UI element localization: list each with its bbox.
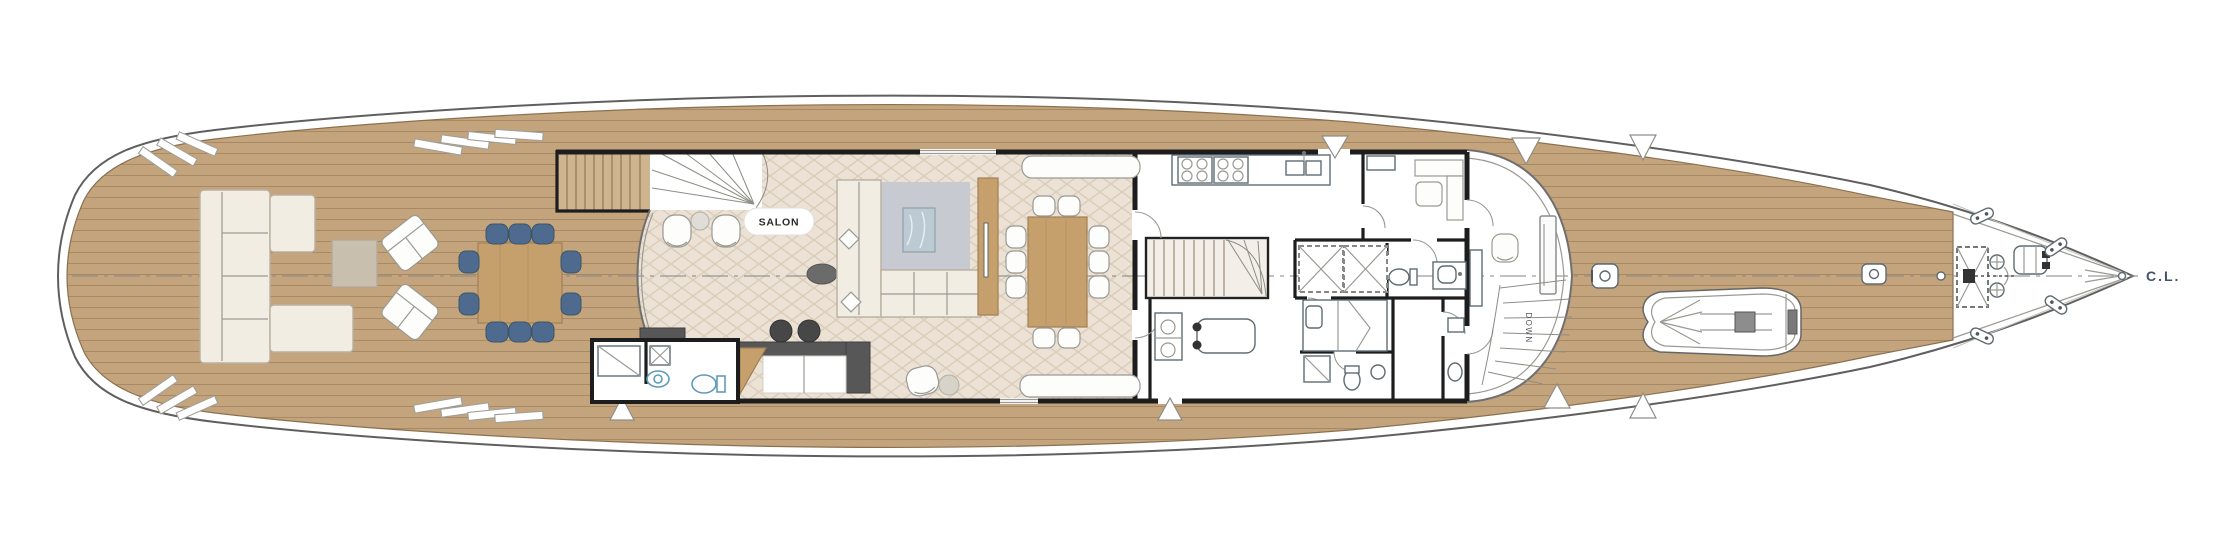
washer-dryer-icon	[1155, 313, 1182, 360]
round-side-table	[939, 375, 959, 395]
salon-label: SALON	[744, 208, 814, 235]
deck-fitting-fwd	[1862, 264, 1886, 284]
tender-console	[1735, 312, 1755, 332]
salon-armchair-1	[663, 215, 691, 247]
helm-seat	[1492, 234, 1518, 262]
crew-cabin	[1303, 300, 1387, 351]
pouf	[807, 264, 837, 284]
tender	[1643, 288, 1801, 356]
anchor-pocket	[2014, 246, 2050, 274]
salon-label-text: SALON	[759, 217, 800, 229]
tv-cabinet	[978, 178, 998, 315]
centerline-label: C.L.	[2146, 268, 2180, 284]
aft-dining-table	[478, 243, 562, 323]
day-head-locker	[650, 346, 670, 365]
yacht-main-deck-plan: SALON	[0, 0, 2216, 552]
day-head	[592, 340, 738, 402]
galley-counter	[1172, 151, 1330, 185]
salon-side-table	[691, 212, 709, 230]
deck-plan-drawing: SALON	[0, 0, 2216, 552]
aft-side-table	[332, 240, 377, 287]
crew-mess	[1155, 313, 1255, 360]
sideboard-bottom	[1020, 375, 1140, 397]
deck-fitting-aft	[1592, 264, 1618, 288]
sideboard-top	[1022, 156, 1140, 178]
down-label: DOWN	[1524, 312, 1533, 343]
salon-armchair-2	[712, 215, 740, 247]
tv	[984, 223, 988, 277]
deck-point	[1937, 272, 1945, 280]
tender-engine	[1788, 310, 1797, 334]
coffee-table	[903, 208, 935, 252]
bar-stool-1	[770, 320, 792, 342]
bar-stool-2	[798, 320, 820, 342]
interior-dining-table	[1028, 217, 1087, 327]
hatch-lockers	[1299, 246, 1387, 292]
